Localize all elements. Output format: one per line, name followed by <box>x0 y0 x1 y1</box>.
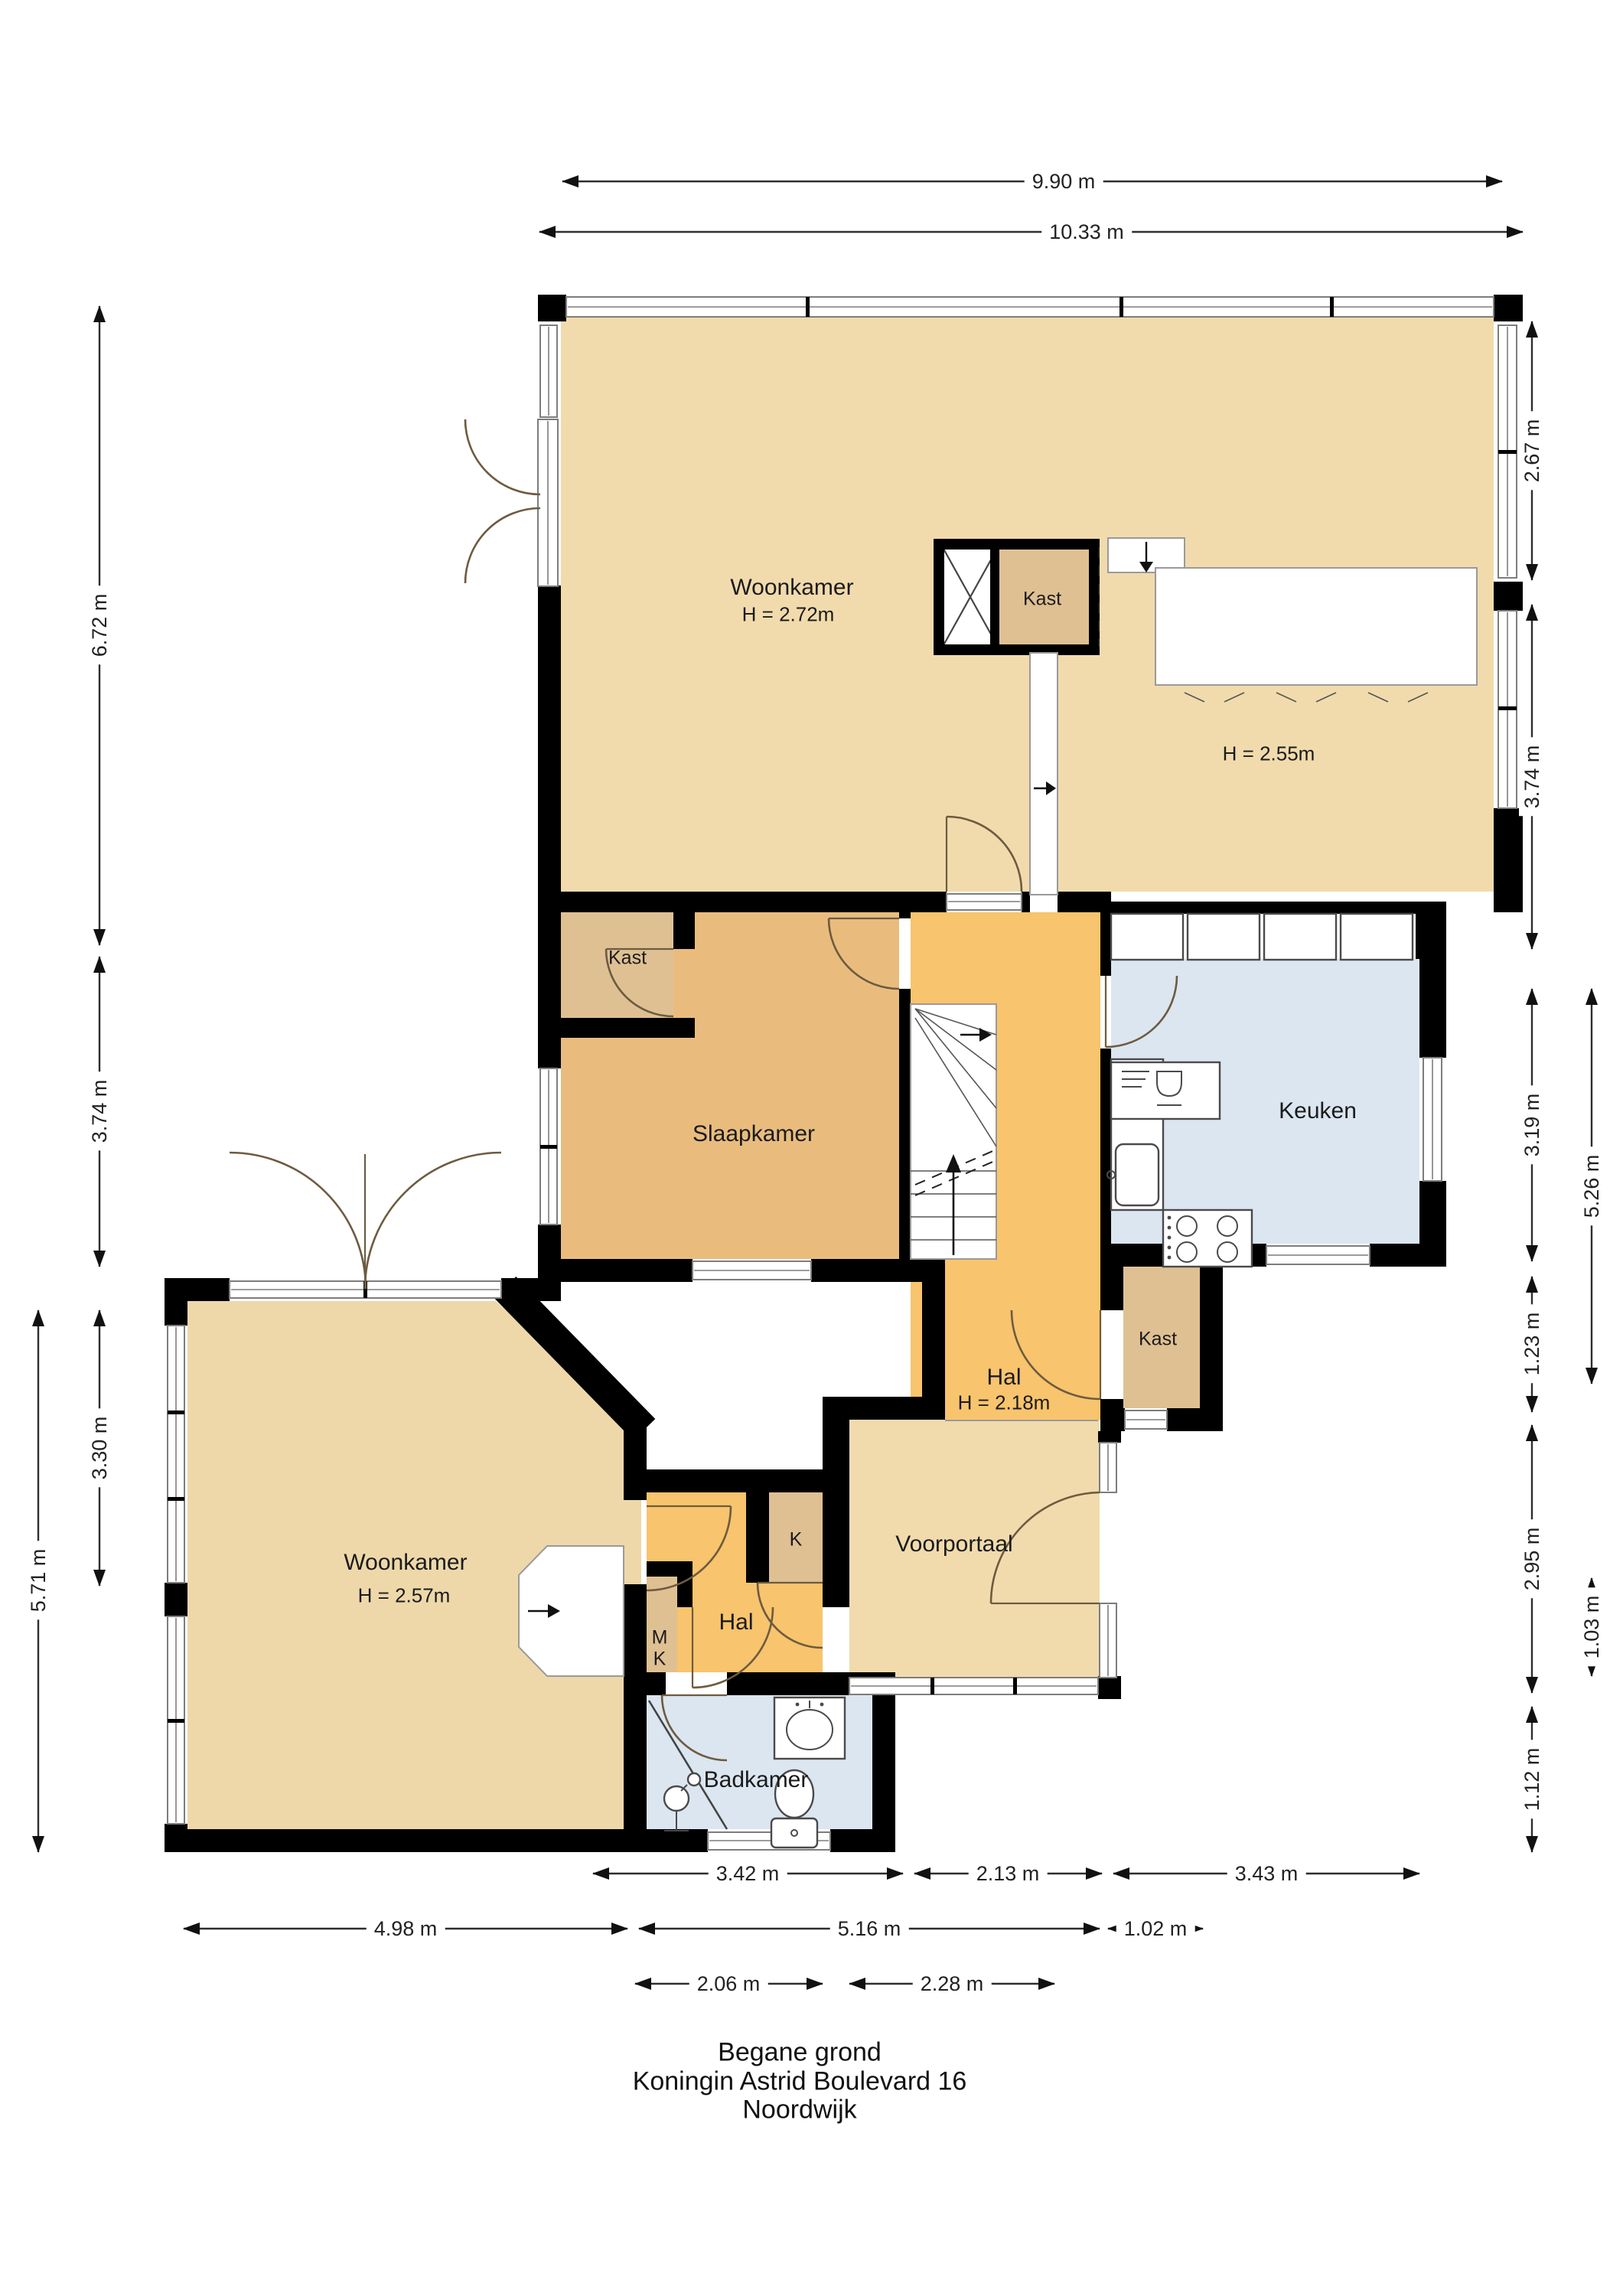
dim-bottom-2: 2.13 m <box>969 1861 1048 1887</box>
label-woonkamer-bottom: Woonkamer <box>344 1550 467 1576</box>
label-keuken: Keuken <box>1279 1098 1357 1124</box>
label-woonkamer-top-height: H = 2.72m <box>742 603 835 627</box>
window <box>566 297 1494 317</box>
stairs <box>911 1004 996 1259</box>
door-french-top-left <box>465 419 540 583</box>
door-french-bottom-woonkamer <box>230 1153 501 1289</box>
dim-left-outer: 5.71 m <box>25 1541 51 1620</box>
label-kast-keuken: Kast <box>1139 1329 1177 1351</box>
dim-bottom-3: 3.43 m <box>1227 1861 1306 1887</box>
window <box>168 1326 184 1583</box>
dim-bottom-1: 3.42 m <box>709 1861 787 1887</box>
dishwasher-icon <box>1111 1062 1220 1119</box>
window <box>1498 325 1517 578</box>
window <box>1423 1058 1442 1181</box>
dim-right-3: 3.19 m <box>1519 1086 1545 1165</box>
floor-plan-drawing <box>0 0 1623 2296</box>
dim-bottom-6: 1.02 m <box>1116 1916 1195 1942</box>
stove-icon <box>1163 1210 1252 1267</box>
dim-left-2: 3.74 m <box>86 1072 112 1151</box>
dim-right-outer-1: 5.26 m <box>1579 1147 1605 1226</box>
label-kast-slaapkamer: Kast <box>608 947 647 970</box>
counter <box>1155 568 1477 685</box>
label-mk-closet-k: K <box>653 1649 666 1671</box>
window <box>1498 611 1517 808</box>
dim-right-6: 1.12 m <box>1519 1740 1545 1819</box>
plan-title-floor: Begane grond <box>718 2038 882 2068</box>
dim-top-outer: 10.33 m <box>1041 219 1132 245</box>
dim-right-5: 2.95 m <box>1519 1520 1545 1599</box>
window <box>1266 1246 1370 1264</box>
washbasin-icon <box>774 1698 845 1759</box>
label-hal-klein: Hal <box>719 1609 753 1636</box>
dim-right-2: 3.74 m <box>1519 738 1545 817</box>
label-kast-top: Kast <box>1023 589 1061 611</box>
dim-left-3: 3.30 m <box>86 1409 112 1488</box>
label-badkamer: Badkamer <box>704 1767 809 1793</box>
window <box>1125 1411 1167 1429</box>
label-slaapkamer: Slaapkamer <box>693 1121 815 1147</box>
fireplace-bay <box>519 1546 624 1676</box>
window <box>540 325 557 417</box>
kitchen-cabinets <box>1111 914 1413 960</box>
shaft-and-kast-top <box>939 544 1099 650</box>
window <box>538 419 558 586</box>
dim-top-inner: 9.90 m <box>1025 168 1103 194</box>
window <box>540 1068 557 1225</box>
label-woonkamer-top: Woonkamer <box>730 575 853 601</box>
label-k-closet: K <box>790 1529 803 1551</box>
step-band <box>1030 653 1058 895</box>
dim-right-4: 1.23 m <box>1519 1305 1545 1384</box>
label-hal-height: H = 2.18m <box>958 1391 1051 1415</box>
window <box>849 1678 1098 1694</box>
dim-bottom-4: 4.98 m <box>367 1916 445 1942</box>
label-voorportaal: Voorportaal <box>895 1531 1012 1557</box>
window <box>693 1261 811 1280</box>
floorplan-page: Woonkamer H = 2.72m Kast H = 2.55m Kast … <box>0 0 1623 2296</box>
plan-title-city: Noordwijk <box>742 2095 856 2125</box>
dim-bottom-7: 2.06 m <box>689 1971 768 1997</box>
label-mk-closet-m: M <box>652 1627 668 1649</box>
window <box>947 894 1022 910</box>
label-open-area-height: H = 2.55m <box>1223 742 1315 766</box>
label-hal: Hal <box>986 1365 1021 1391</box>
dim-right-1: 2.67 m <box>1519 412 1545 491</box>
plan-title-address: Koningin Astrid Boulevard 16 <box>633 2067 967 2097</box>
dim-right-outer-2: 1.03 m <box>1579 1588 1605 1667</box>
window <box>1100 1603 1116 1678</box>
label-woonkamer-bottom-height: H = 2.57m <box>358 1584 451 1608</box>
dim-bottom-8: 2.28 m <box>913 1971 992 1997</box>
dim-left-1: 6.72 m <box>86 586 112 665</box>
sink-icon <box>1107 1144 1159 1205</box>
window <box>1100 1443 1116 1492</box>
dim-bottom-5: 5.16 m <box>830 1916 909 1942</box>
window <box>168 1616 184 1824</box>
